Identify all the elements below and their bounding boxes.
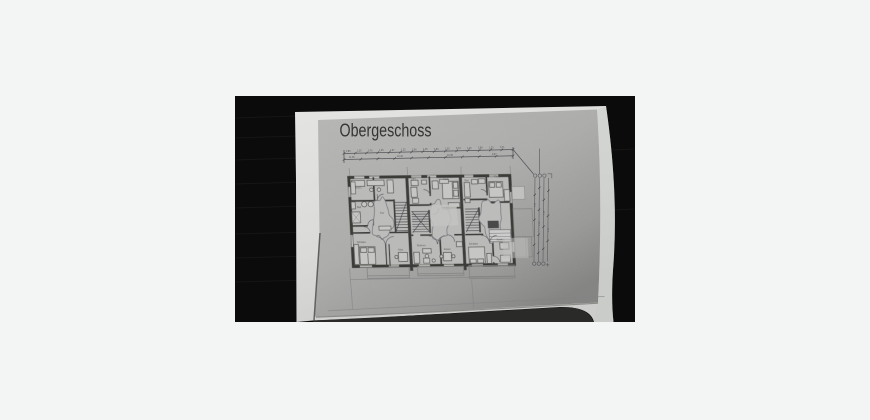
svg-text:2,87: 2,87 bbox=[390, 150, 395, 152]
svg-text:1,25: 1,25 bbox=[423, 149, 428, 151]
svg-text:3,89: 3,89 bbox=[434, 149, 439, 151]
svg-text:11,35: 11,35 bbox=[349, 157, 355, 159]
svg-text:1,25: 1,25 bbox=[357, 151, 362, 153]
svg-text:1,25: 1,25 bbox=[401, 150, 406, 152]
svg-text:10,42: 10,42 bbox=[397, 156, 403, 158]
svg-text:9,97: 9,97 bbox=[492, 154, 497, 156]
svg-text:Kind 2: Kind 2 bbox=[494, 176, 502, 179]
svg-text:1,25: 1,25 bbox=[445, 149, 450, 151]
svg-text:Essen: Essen bbox=[444, 248, 451, 251]
svg-text:Kind 1: Kind 1 bbox=[355, 187, 363, 190]
svg-text:Schlafen: Schlafen bbox=[357, 241, 367, 244]
svg-text:3,66: 3,66 bbox=[412, 149, 417, 151]
svg-text:Wohnen: Wohnen bbox=[417, 244, 427, 247]
svg-text:3,71: 3,71 bbox=[500, 147, 505, 149]
svg-text:10,38: 10,38 bbox=[447, 155, 453, 157]
svg-text:Obergeschoss: Obergeschoss bbox=[340, 121, 432, 141]
svg-text:Kind: Kind bbox=[443, 178, 449, 181]
svg-text:3,76: 3,76 bbox=[368, 150, 373, 152]
svg-text:1,25: 1,25 bbox=[467, 148, 472, 150]
svg-text:Flur: Flur bbox=[380, 212, 384, 215]
svg-text:3,68: 3,68 bbox=[478, 148, 483, 150]
svg-text:Schlafen: Schlafen bbox=[469, 242, 479, 245]
svg-text:3,85: 3,85 bbox=[346, 151, 351, 153]
svg-text:1,25: 1,25 bbox=[489, 148, 494, 150]
svg-text:3,74: 3,74 bbox=[456, 148, 461, 150]
svg-text:Abst.: Abst. bbox=[398, 248, 404, 251]
svg-text:1,25: 1,25 bbox=[379, 150, 384, 152]
